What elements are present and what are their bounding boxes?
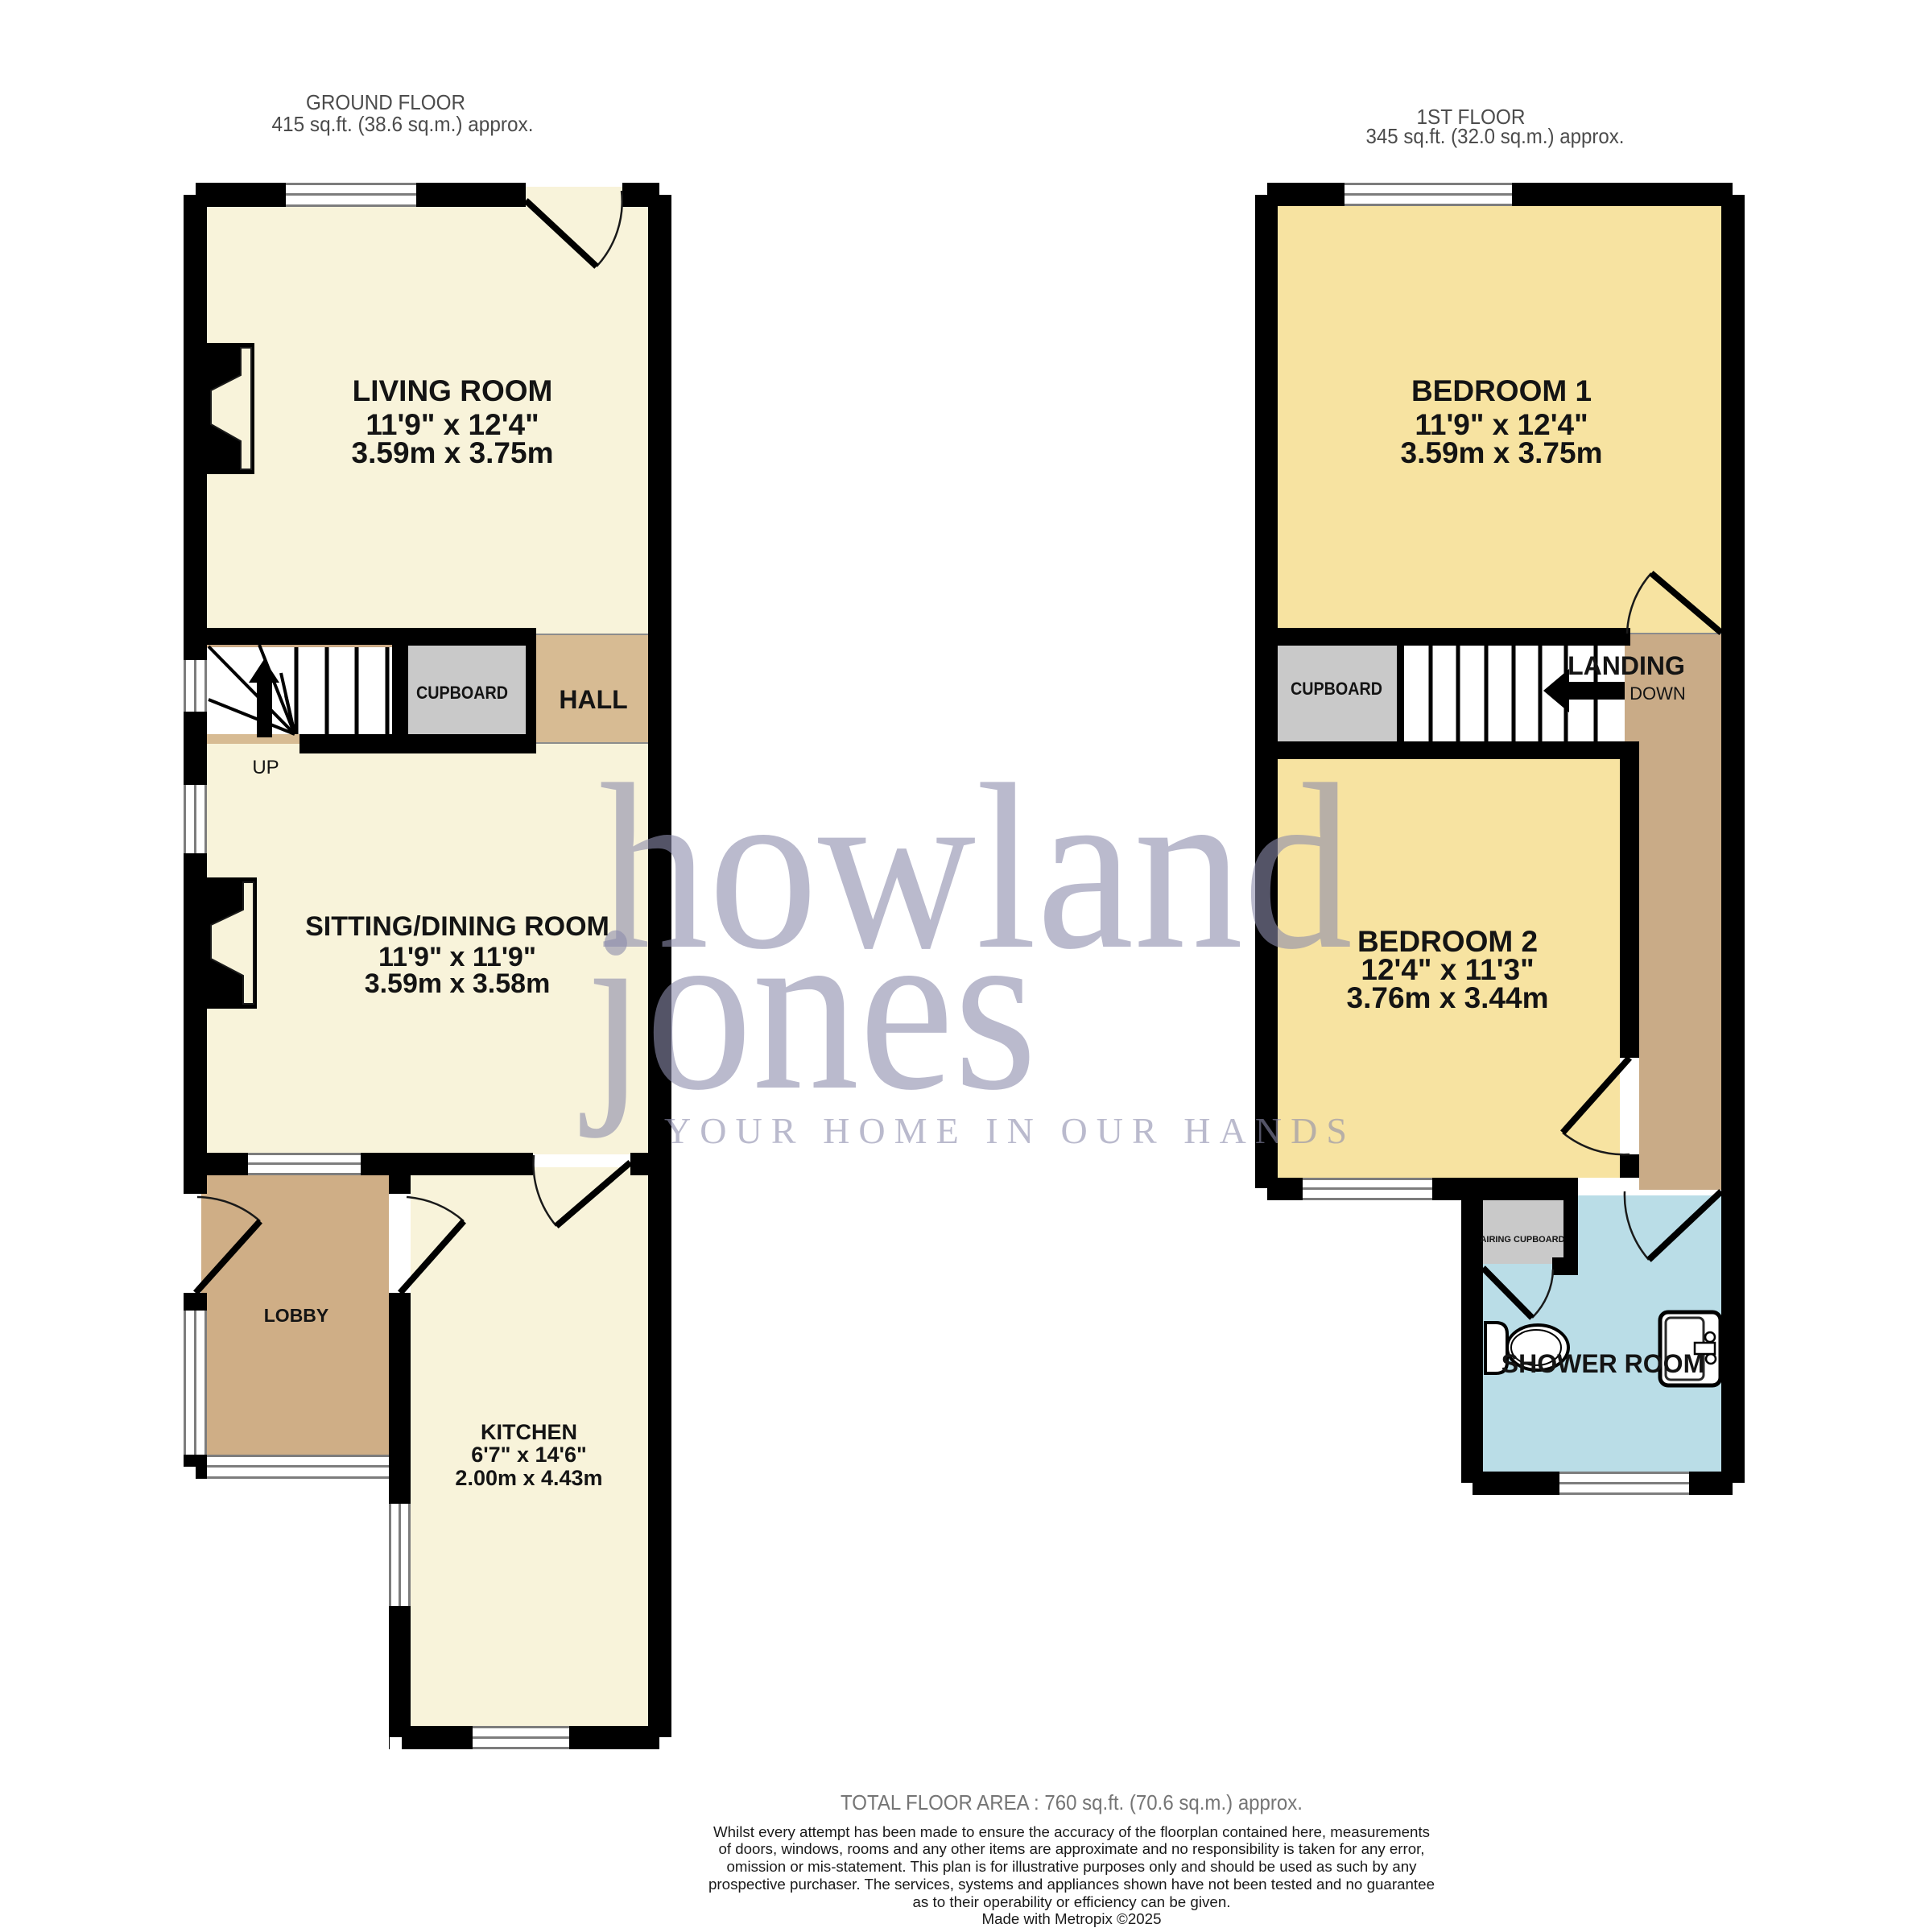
svg-text:6'7" x 14'6": 6'7" x 14'6": [471, 1443, 587, 1467]
svg-text:omission or mis-statement. Thi: omission or mis-statement. This plan is …: [727, 1859, 1417, 1875]
svg-text:DOWN: DOWN: [1630, 683, 1686, 704]
svg-text:Whilst every attempt has been: Whilst every attempt has been made to en…: [713, 1824, 1430, 1840]
svg-text:TOTAL FLOOR AREA : 760 sq.ft.: TOTAL FLOOR AREA : 760 sq.ft. (70.6 sq.m…: [841, 1790, 1303, 1814]
svg-text:GROUND FLOOR: GROUND FLOOR: [306, 90, 465, 114]
svg-text:BEDROOM 1: BEDROOM 1: [1411, 374, 1592, 407]
svg-text:AIRING CUPBOARD: AIRING CUPBOARD: [1480, 1235, 1564, 1245]
svg-text:CUPBOARD: CUPBOARD: [1291, 679, 1382, 699]
svg-text:CUPBOARD: CUPBOARD: [416, 683, 508, 703]
svg-text:prospective purchaser. The ser: prospective purchaser. The services, sys…: [708, 1876, 1435, 1893]
svg-text:415 sq.ft. (38.6 sq.m.) approx: 415 sq.ft. (38.6 sq.m.) approx.: [272, 112, 534, 136]
svg-text:345 sq.ft. (32.0 sq.m.) approx: 345 sq.ft. (32.0 sq.m.) approx.: [1366, 124, 1625, 148]
svg-text:2.00m x 4.43m: 2.00m x 4.43m: [455, 1466, 602, 1490]
svg-text:of doors, windows, rooms and a: of doors, windows, rooms and any other i…: [719, 1841, 1425, 1857]
svg-text:3.59m x 3.75m: 3.59m x 3.75m: [352, 436, 554, 469]
svg-text:3.76m x 3.44m: 3.76m x 3.44m: [1347, 981, 1549, 1014]
svg-text:Made with Metropix ©2025: Made with Metropix ©2025: [982, 1911, 1162, 1927]
svg-text:LANDING: LANDING: [1568, 651, 1685, 680]
svg-text:jones: jones: [580, 876, 1037, 1140]
svg-text:SHOWER ROOM: SHOWER ROOM: [1501, 1349, 1704, 1378]
svg-text:as to their operability or eff: as to their operability or efficiency ca…: [913, 1894, 1231, 1910]
svg-text:UP: UP: [252, 757, 279, 778]
svg-text:LOBBY: LOBBY: [264, 1305, 329, 1326]
svg-text:SITTING/DINING ROOM: SITTING/DINING ROOM: [305, 911, 609, 942]
svg-text:LIVING ROOM: LIVING ROOM: [353, 374, 553, 407]
svg-text:KITCHEN: KITCHEN: [481, 1420, 577, 1444]
svg-text:HALL: HALL: [559, 685, 627, 714]
svg-text:3.59m x 3.58m: 3.59m x 3.58m: [365, 968, 551, 999]
svg-text:3.59m x 3.75m: 3.59m x 3.75m: [1401, 436, 1603, 469]
